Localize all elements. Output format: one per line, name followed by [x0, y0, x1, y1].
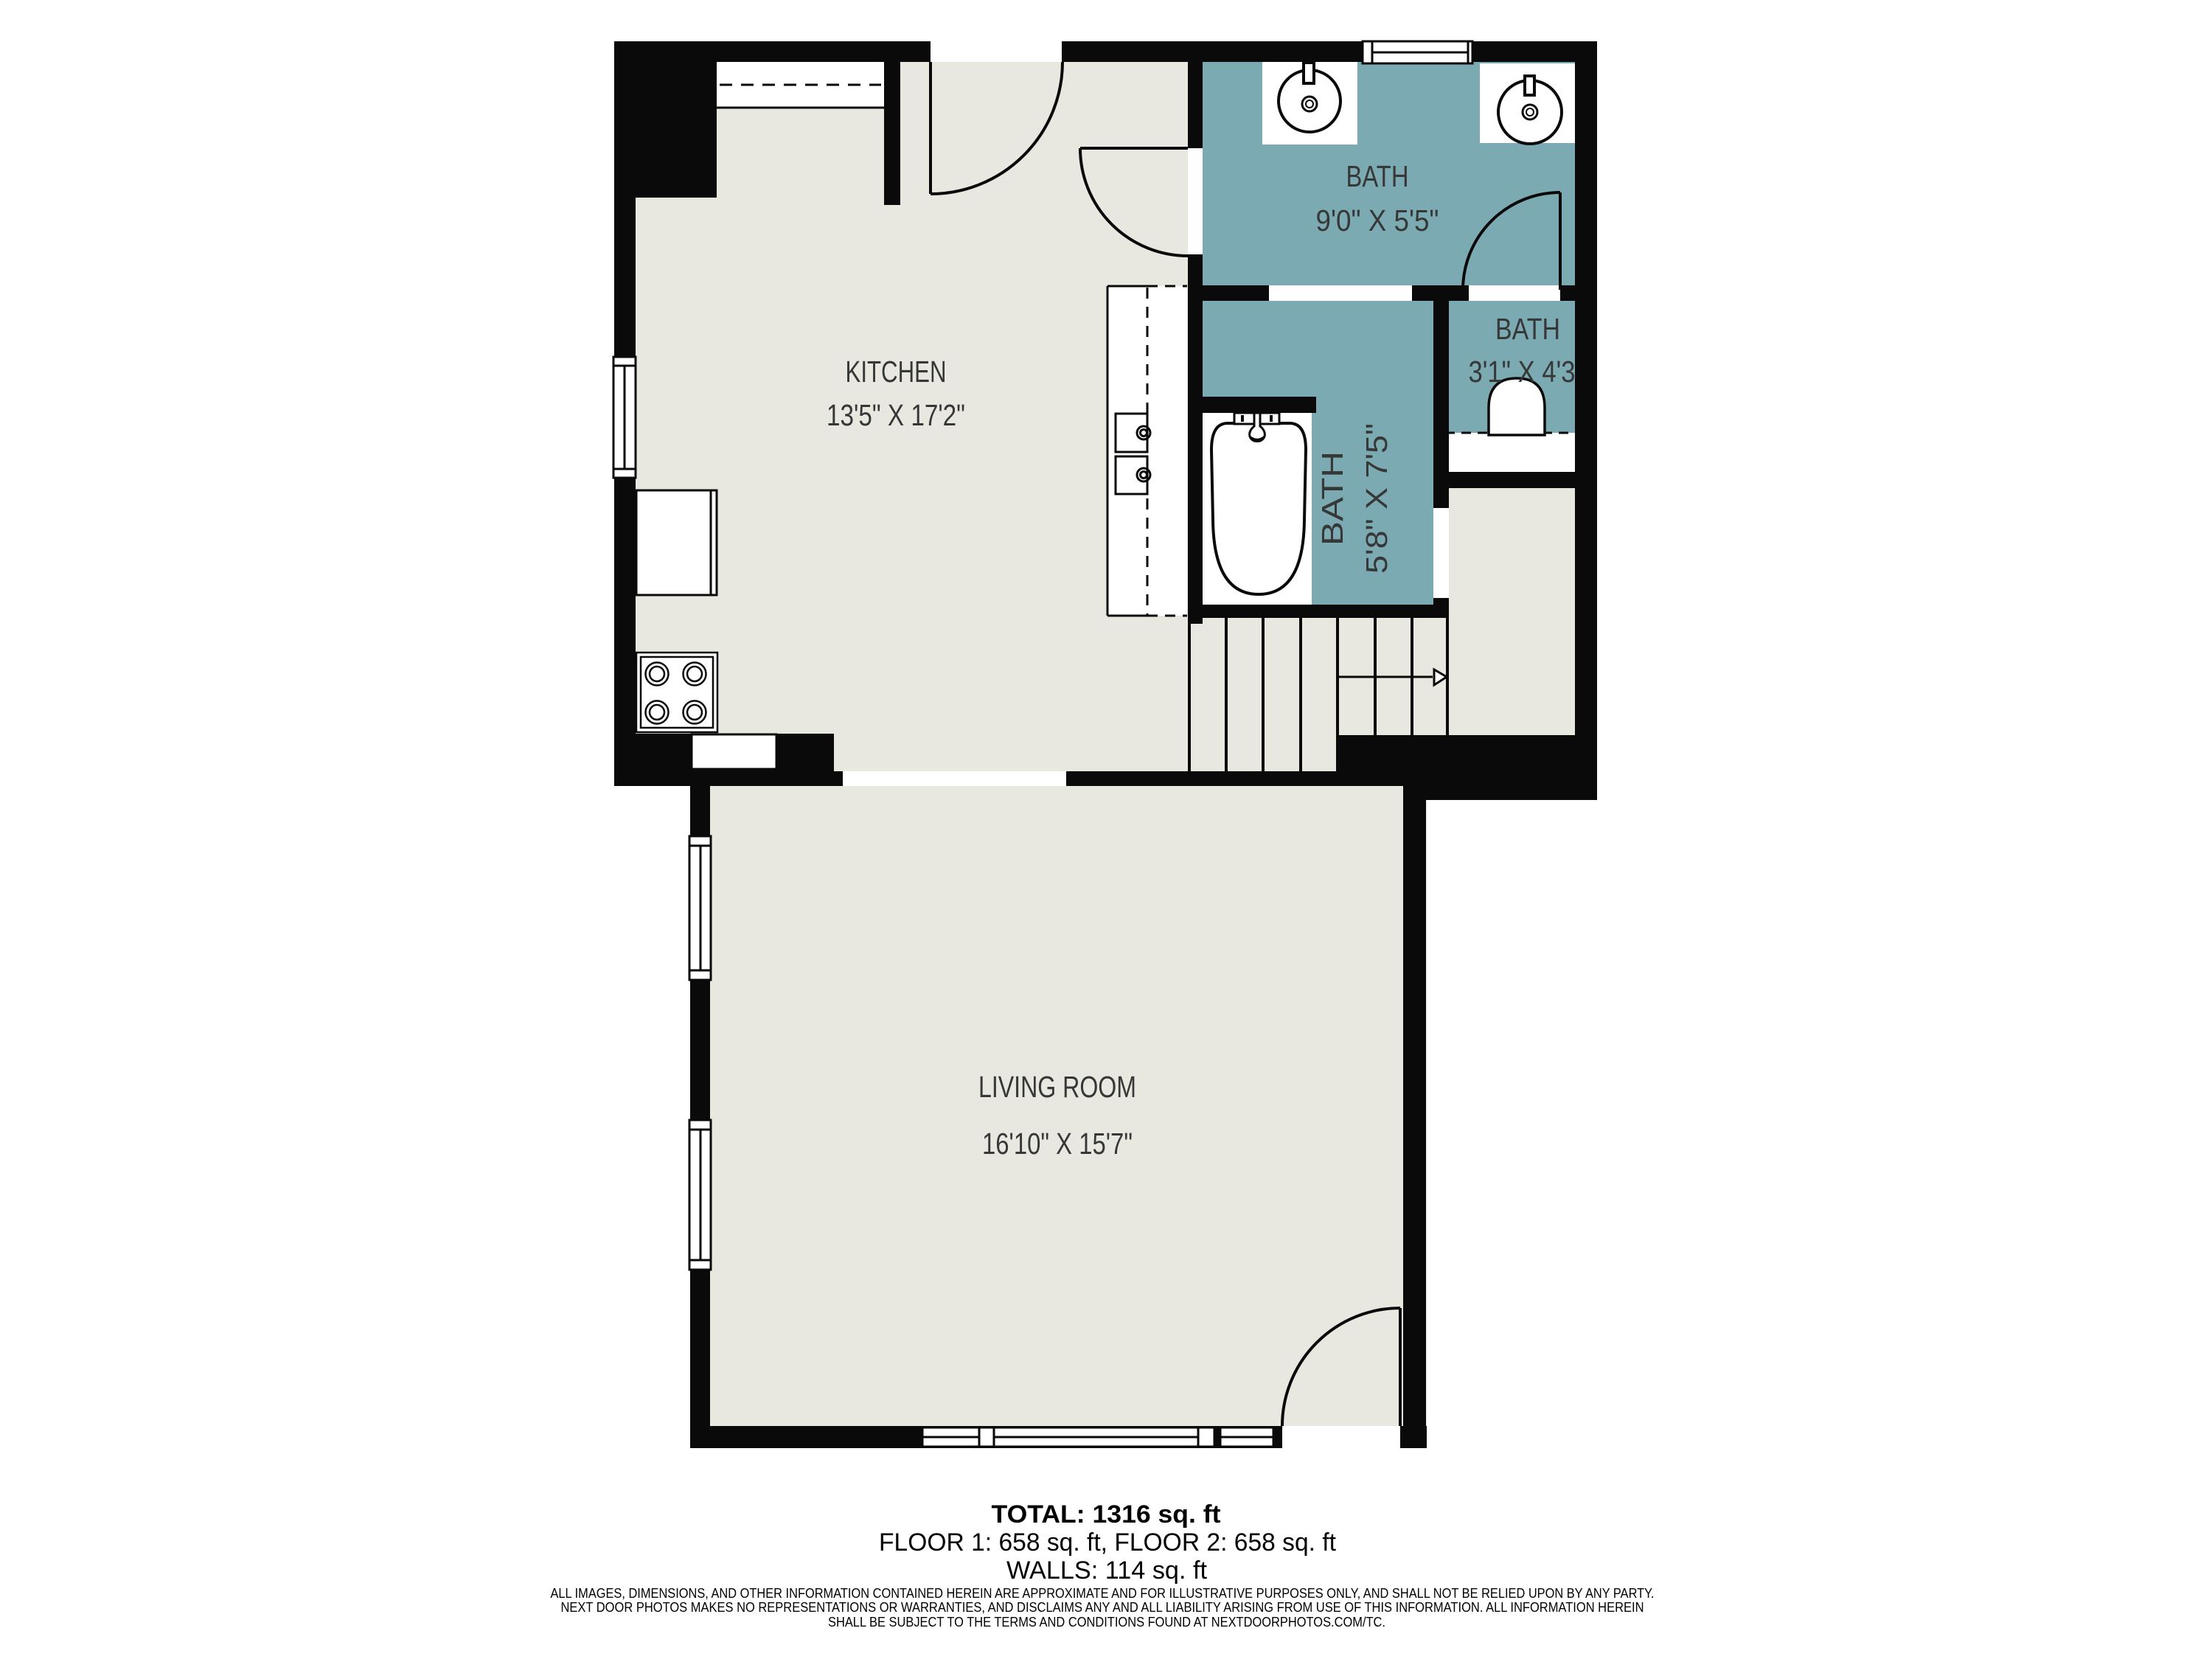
- svg-text:ALL IMAGES, DIMENSIONS, AND OT: ALL IMAGES, DIMENSIONS, AND OTHER INFORM…: [551, 1585, 1655, 1601]
- svg-text:NEXT DOOR PHOTOS MAKES NO REPR: NEXT DOOR PHOTOS MAKES NO REPRESENTATION…: [561, 1599, 1644, 1615]
- svg-text:BATH: BATH: [1315, 451, 1349, 546]
- svg-text:FLOOR 1: 658 sq. ft, FLOOR 2:: FLOOR 1: 658 sq. ft, FLOOR 2: 658 sq. ft: [879, 1528, 1337, 1557]
- svg-text:13'5" X 17'2": 13'5" X 17'2": [827, 398, 965, 432]
- svg-text:SHALL BE SUBJECT TO THE TERMS: SHALL BE SUBJECT TO THE TERMS AND CONDIT…: [828, 1614, 1385, 1630]
- svg-text:KITCHEN: KITCHEN: [846, 355, 947, 389]
- svg-text:16'10" X 15'7": 16'10" X 15'7": [982, 1127, 1133, 1161]
- svg-text:5'8" X 7'5": 5'8" X 7'5": [1360, 423, 1394, 574]
- svg-text:TOTAL: 1316 sq. ft: TOTAL: 1316 sq. ft: [992, 1500, 1221, 1528]
- svg-text:BATH: BATH: [1495, 312, 1560, 346]
- svg-text:WALLS: 114 sq. ft: WALLS: 114 sq. ft: [1006, 1557, 1208, 1585]
- svg-text:LIVING ROOM: LIVING ROOM: [978, 1070, 1136, 1104]
- svg-text:3'1" X 4'3: 3'1" X 4'3: [1469, 355, 1576, 389]
- svg-text:BATH: BATH: [1346, 159, 1409, 193]
- svg-text:9'0" X 5'5": 9'0" X 5'5": [1316, 204, 1439, 237]
